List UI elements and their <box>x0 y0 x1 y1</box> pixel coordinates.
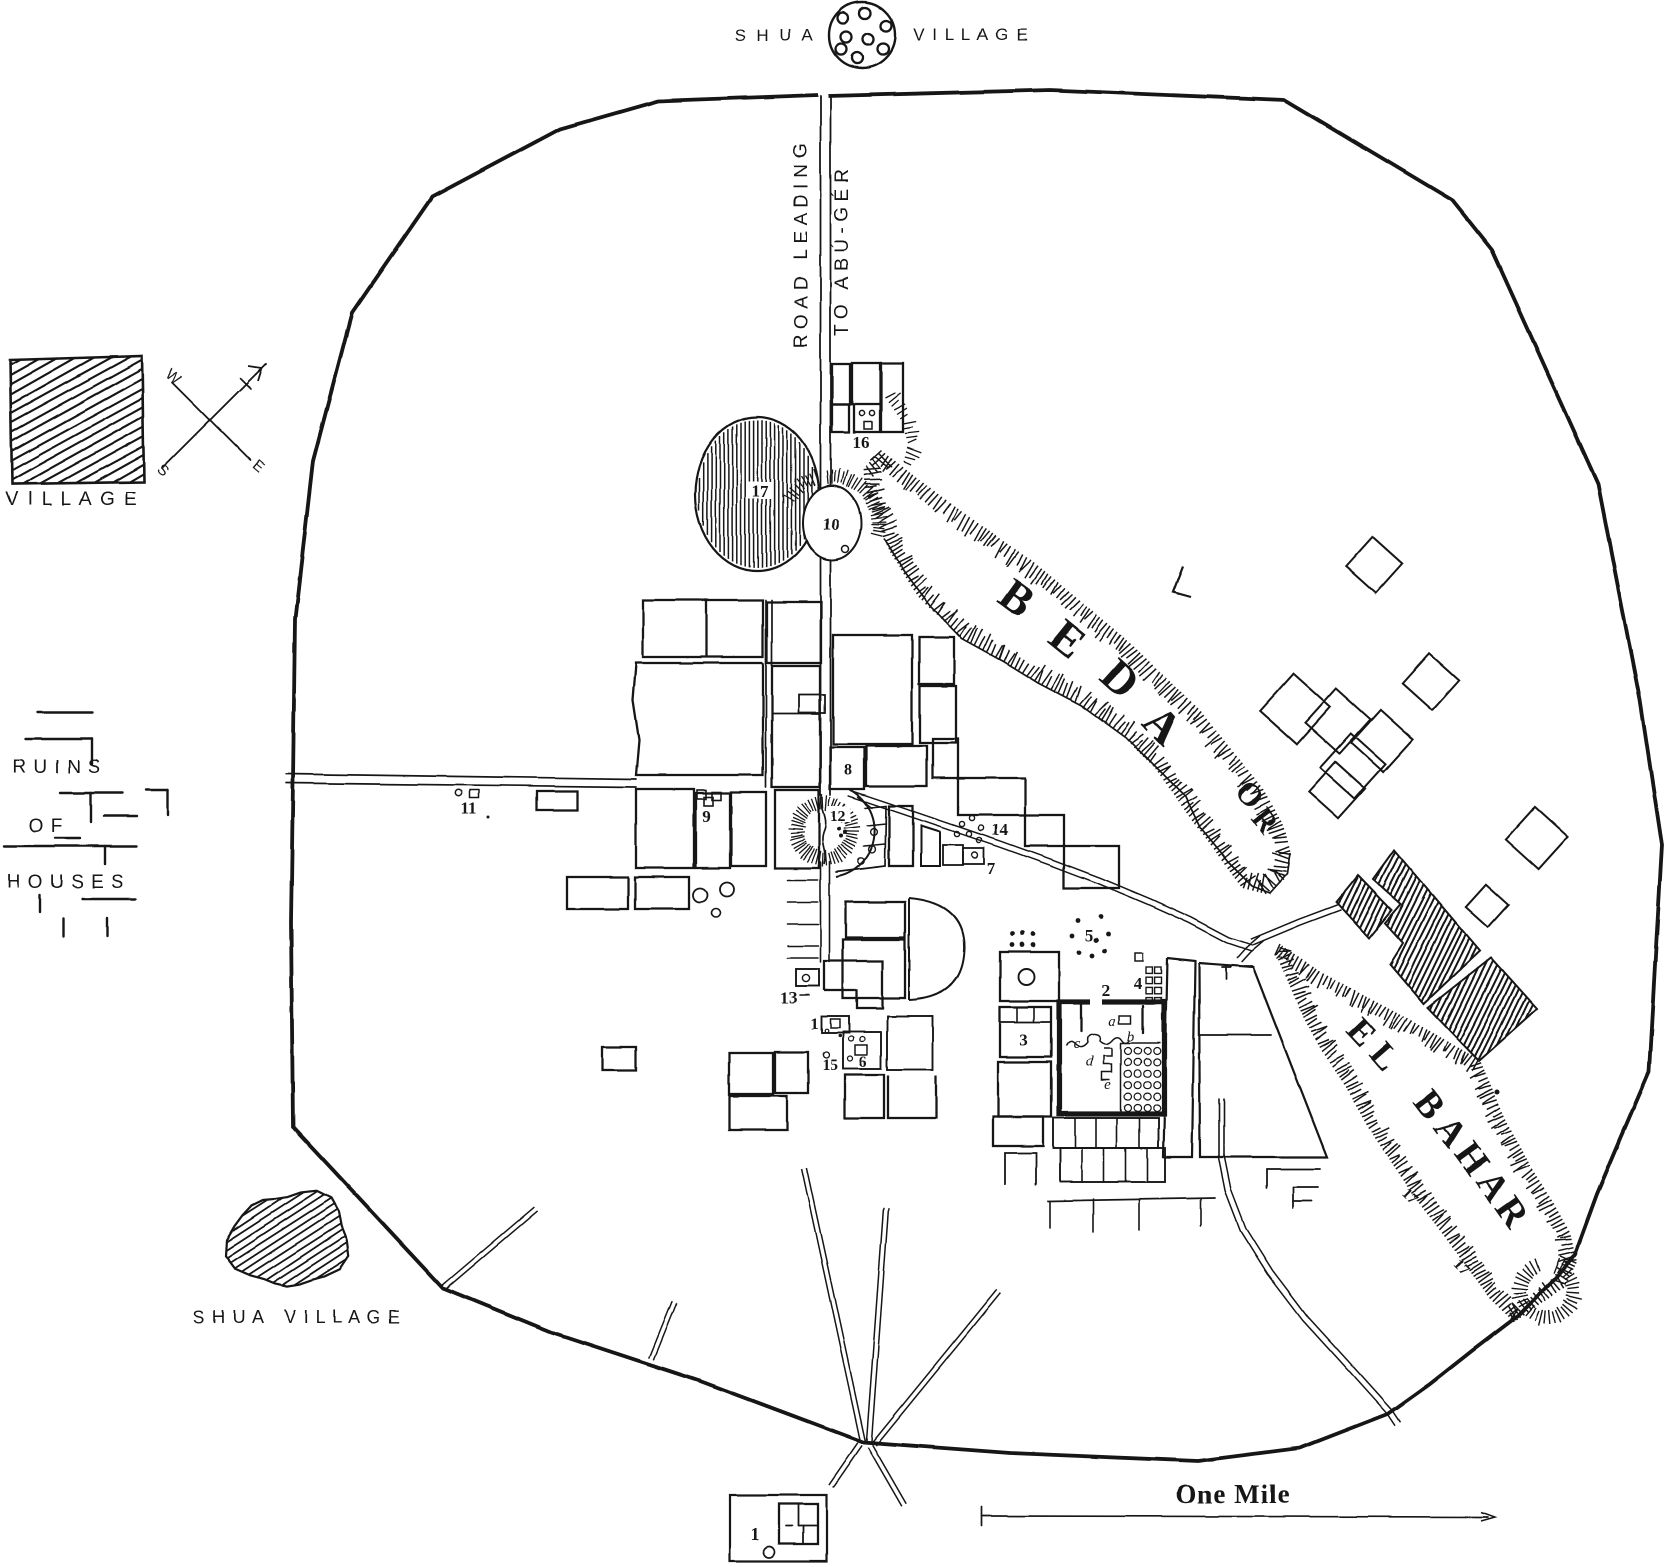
svg-text:2: 2 <box>1102 981 1111 1000</box>
svg-text:12: 12 <box>830 808 846 825</box>
svg-text:14: 14 <box>992 820 1010 839</box>
svg-text:13: 13 <box>781 988 798 1007</box>
svg-text:d: d <box>1086 1054 1094 1070</box>
svg-text:e: e <box>1105 1077 1112 1093</box>
svg-text:8: 8 <box>844 762 852 779</box>
svg-text:1: 1 <box>811 1014 820 1033</box>
svg-text:S H U A: S H U A <box>734 26 815 45</box>
svg-text:V I L L A G E: V I L L A G E <box>5 489 138 510</box>
svg-text:9: 9 <box>703 807 712 826</box>
svg-text:6: 6 <box>859 1054 867 1071</box>
svg-text:10: 10 <box>823 515 840 534</box>
svg-text:O F: O F <box>29 816 64 837</box>
svg-text:One Mile: One Mile <box>1175 1479 1290 1509</box>
svg-text:1: 1 <box>751 1524 760 1544</box>
svg-text:S H U A V I L L A G E: S H U A V I L L A G E <box>193 1307 401 1327</box>
svg-text:16: 16 <box>853 433 870 452</box>
svg-text:H O U S E S: H O U S E S <box>7 872 125 893</box>
svg-text:TO ABÚ-GÉR: TO ABÚ-GÉR <box>831 164 853 336</box>
svg-text:ROAD LEADING: ROAD LEADING <box>791 138 812 348</box>
svg-text:4: 4 <box>1134 974 1143 993</box>
svg-text:R U I N S: R U I N S <box>12 757 101 778</box>
svg-text:5: 5 <box>1085 926 1094 945</box>
svg-text:c: c <box>1074 1036 1081 1052</box>
svg-text:15: 15 <box>822 1057 838 1074</box>
svg-text:11: 11 <box>461 799 477 818</box>
svg-text:7: 7 <box>987 859 996 878</box>
svg-text:V I L L A G E: V I L L A G E <box>913 25 1029 44</box>
svg-text:17: 17 <box>752 482 770 501</box>
svg-text:3: 3 <box>1020 1030 1029 1049</box>
svg-text:a: a <box>1108 1014 1116 1030</box>
